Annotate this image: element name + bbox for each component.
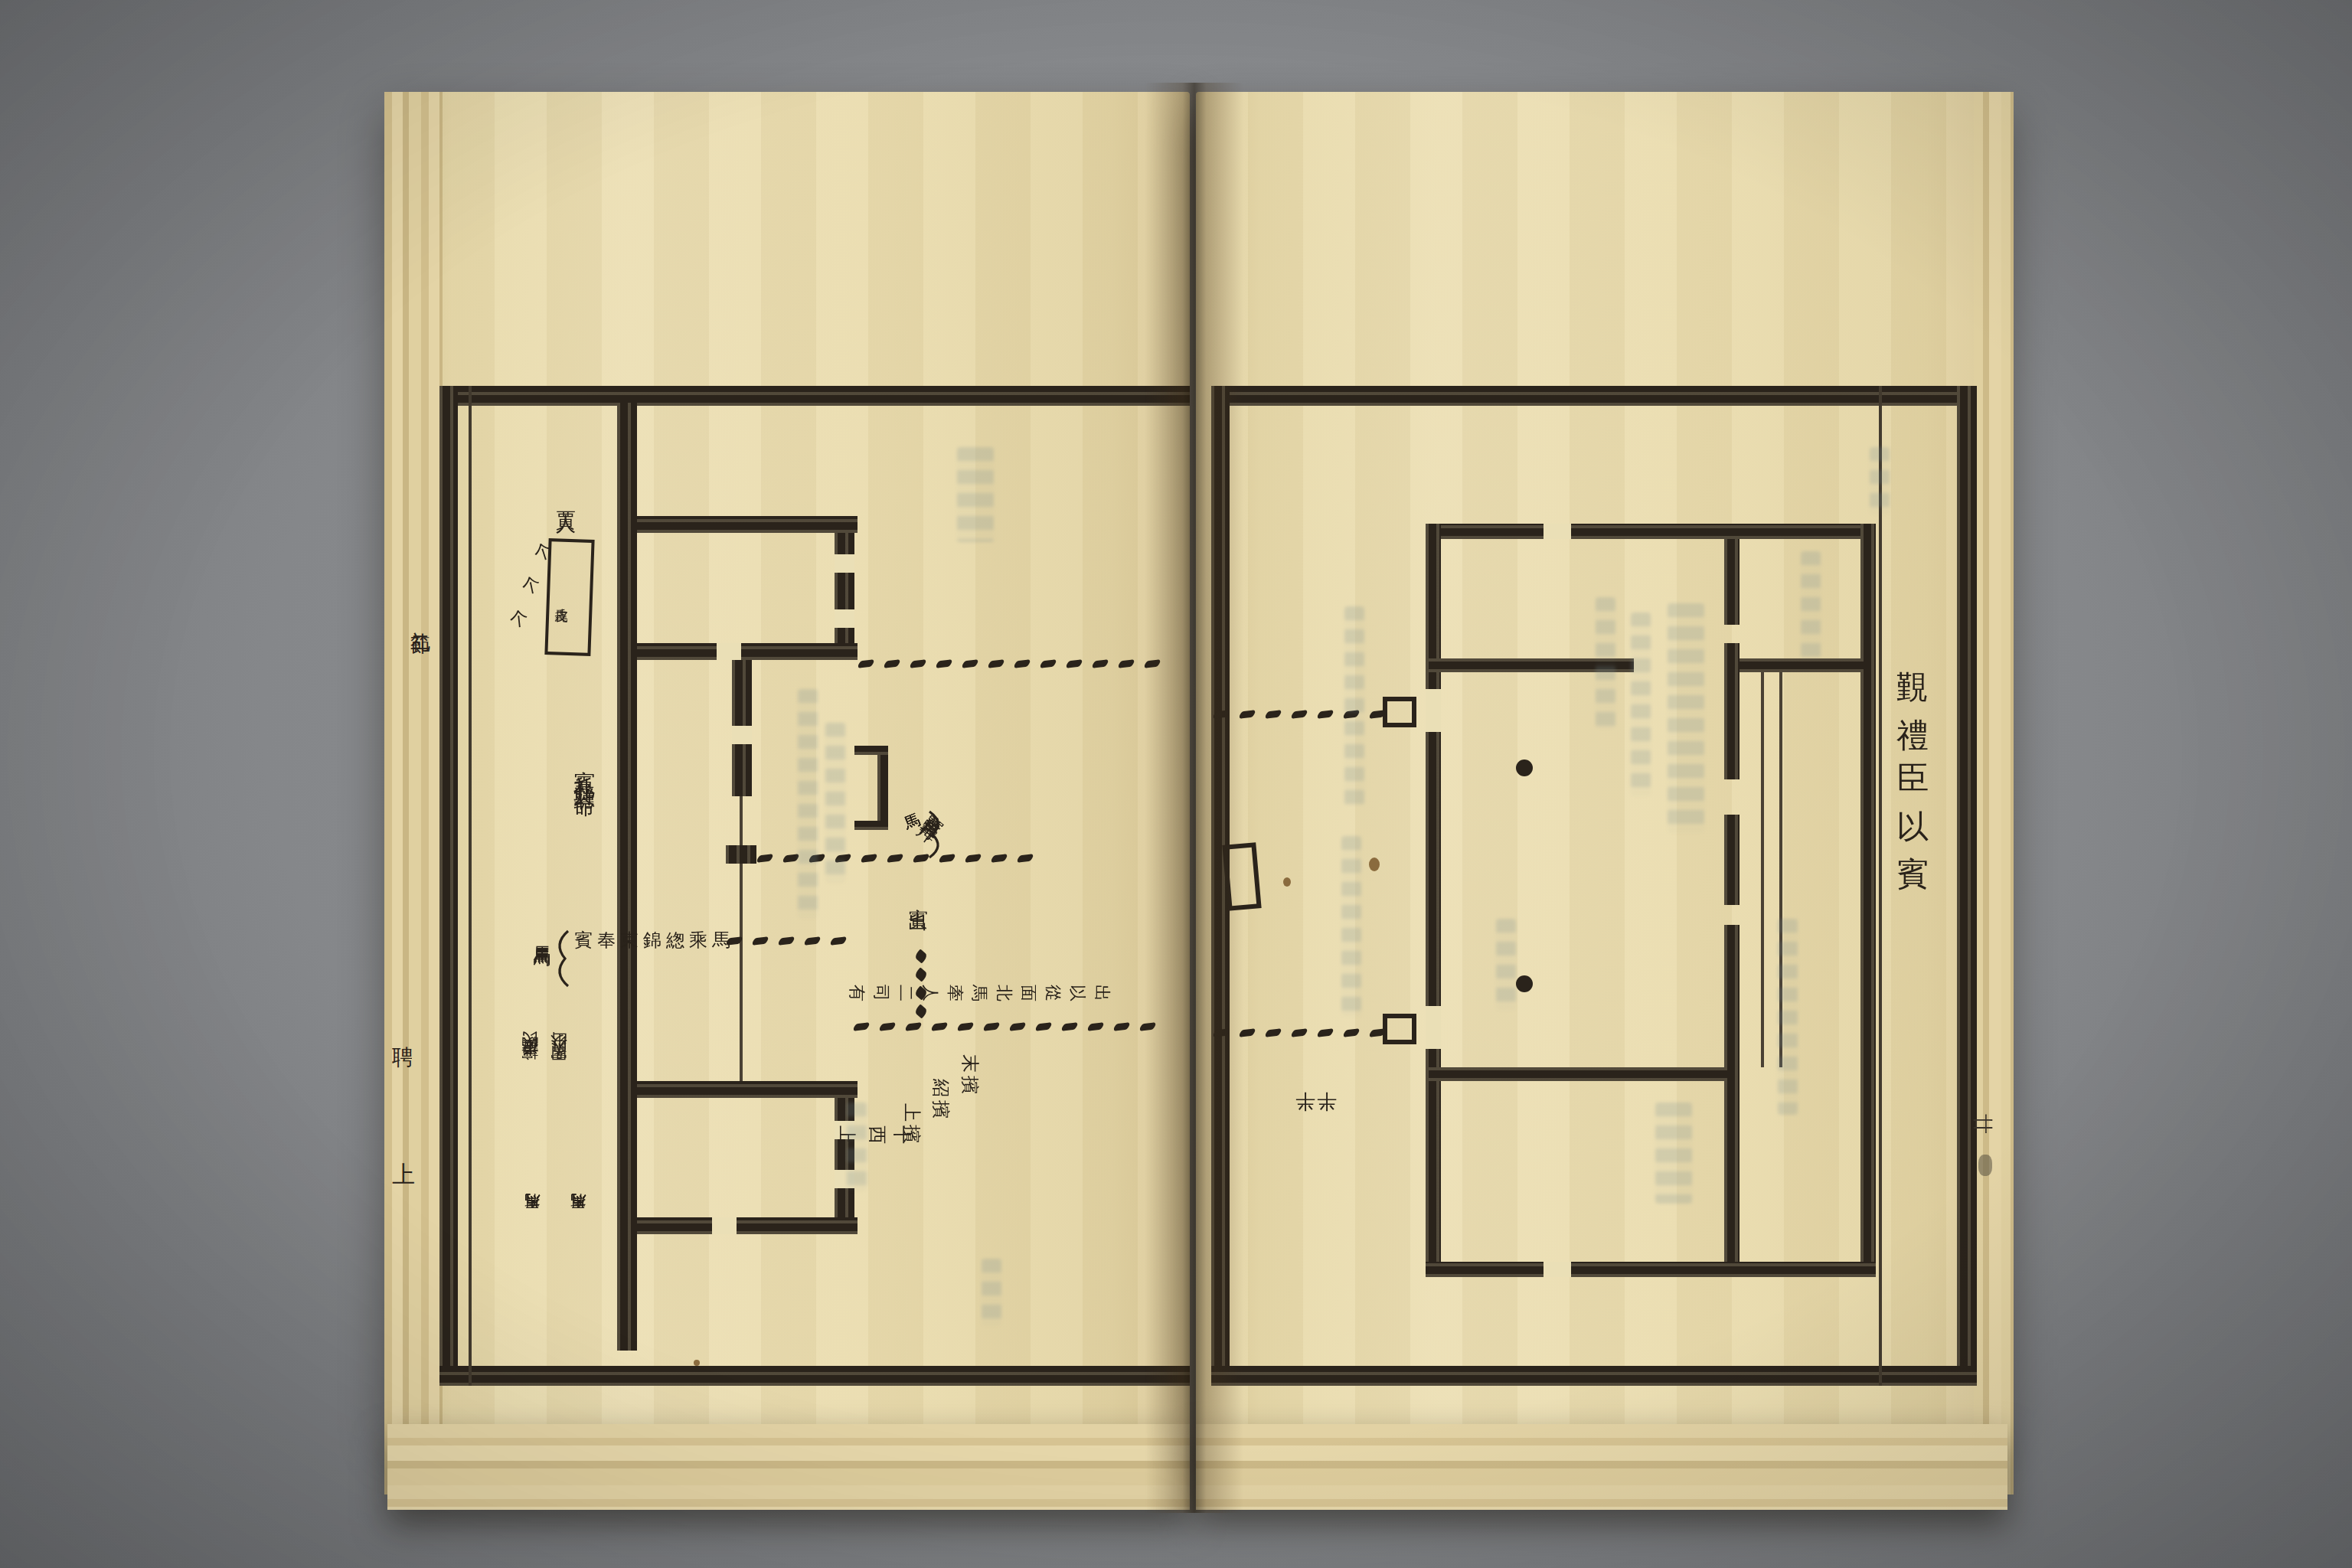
dotted-trail-offering <box>727 937 845 945</box>
plan-inner-wall-vertical <box>1724 539 1739 625</box>
door-slit <box>835 1170 854 1188</box>
ghost-bleed-text <box>1668 603 1704 833</box>
ghost-bleed-text <box>1801 551 1821 658</box>
foxing-speck <box>694 1360 700 1366</box>
plan-bottom-room-top-wall <box>637 1081 857 1098</box>
door-slit <box>835 1121 854 1139</box>
ghost-bleed-text <box>957 447 994 542</box>
ghost-bleed-text <box>1655 1102 1692 1204</box>
door-slit <box>1543 1262 1571 1277</box>
flipped-annotation-block: 賓四人以出 擯者謁侯氏 <box>522 1060 568 1075</box>
dotted-trail-upper <box>1214 710 1384 718</box>
right-page-bottom-edges <box>1196 1424 2007 1510</box>
plan-bottom-room-bottom-wall <box>637 1217 857 1234</box>
right-page: 覲禮臣以賓 半半 廿 <box>1196 92 2007 1427</box>
gate-opening <box>1426 1006 1441 1049</box>
plate-margin-rule <box>469 386 472 1386</box>
plan-lower-wall-horizontal <box>1429 1067 1727 1081</box>
plan-outer-wall-left <box>1426 524 1441 1277</box>
under-leaf-partial-char-1: 聘 <box>392 1044 412 1072</box>
leaf-number: 廿 <box>1968 1114 1996 1137</box>
corridor-line <box>1779 672 1782 1067</box>
plan-outer-wall-right <box>1860 524 1876 1277</box>
gate-opening <box>1426 689 1441 732</box>
left-page: 礼節二 聘 上 賈人 个 个 个 <box>387 92 1190 1427</box>
plate-frame-bottom <box>1211 1366 1977 1386</box>
dotted-trail-middle <box>758 854 1032 862</box>
rotated-pair-mark: 半半 <box>1294 1087 1337 1115</box>
label-west-upper: 十西上 <box>862 1133 936 1136</box>
gate-marker-square <box>1383 1014 1416 1044</box>
door-slit <box>712 1217 737 1234</box>
plan-inner-wall-vertical <box>1724 643 1739 779</box>
plate-frame-left <box>439 386 458 1386</box>
flipped-column-b: 賓四人以出 <box>551 1060 568 1075</box>
label-merchant: 賈人 <box>556 495 576 501</box>
label-usher-mid: 紹擯 <box>927 1079 953 1122</box>
jie-mark: 个 <box>508 606 532 634</box>
plan-top-room-bottom-wall <box>637 643 857 660</box>
plate-frame-right <box>1957 386 1977 1386</box>
plate-frame-top <box>1211 386 1977 406</box>
scanned-book-photo: 礼節二 聘 上 賈人 个 个 个 <box>0 0 2352 1568</box>
ghost-bleed-text <box>1344 606 1364 805</box>
ghost-bleed-text <box>1496 919 1516 1011</box>
position-dot-upper <box>1516 759 1533 776</box>
label-box-text: 毳皮 <box>554 596 568 597</box>
stele-bracket-top <box>854 746 888 755</box>
label-guest-exit: 賓出 <box>908 891 928 900</box>
label-box-outline: 毳皮 <box>544 538 594 656</box>
ghost-bleed-text <box>1631 612 1651 796</box>
plate-title: 覲禮臣以賓 <box>1896 646 1928 876</box>
door-slit <box>835 609 854 628</box>
plan-top-room-top-wall <box>637 516 857 533</box>
plan-inner-wall-vertical <box>1724 925 1739 1262</box>
door-slit <box>717 643 741 660</box>
under-leaf-edge-text: 礼節二 <box>397 616 430 815</box>
dotted-trail-upper <box>859 660 1159 668</box>
left-page-bottom-edges <box>387 1424 1190 1510</box>
label-offering: 賓奉束錦緫乘馬 <box>574 928 735 954</box>
corridor-line <box>1761 672 1764 1067</box>
plan-outer-wall-top <box>1426 524 1865 539</box>
plate-frame-bottom <box>439 1366 1190 1386</box>
plate-frame-top <box>439 386 1190 406</box>
dotted-trail-lower <box>1214 1029 1384 1037</box>
foxing-speck <box>1283 877 1291 887</box>
plan-inner-wall-right-horizontal <box>1739 658 1864 672</box>
label-guest-declines: 賓礼辤聽命 <box>574 753 596 784</box>
right-page-stacked-edges <box>1974 92 2014 1494</box>
plan-inner-wall-vertical <box>1724 815 1739 905</box>
label-officials: 有司二人牽馬北面從以出 <box>847 983 1112 1006</box>
plan-outer-wall-bottom <box>1426 1262 1876 1277</box>
plan-outer-wall-vertical <box>617 403 637 1351</box>
dotted-trail-lower <box>854 1023 1155 1031</box>
position-dot-lower <box>1516 975 1533 992</box>
ink-smudge <box>1978 1155 1992 1176</box>
under-leaf-partial-char-2: 上 <box>392 1161 415 1190</box>
foxing-speck <box>1369 857 1380 871</box>
label-usher-bottom: 上擯 <box>898 1103 924 1146</box>
plan-inner-wall-left-horizontal <box>1429 658 1634 672</box>
jie-mark: 个 <box>520 570 546 600</box>
door-slit <box>1543 524 1571 539</box>
ghost-bleed-text <box>982 1259 1001 1326</box>
ghost-bleed-text <box>798 689 818 919</box>
label-usher-top: 末擯 <box>956 1054 982 1097</box>
door-slit <box>732 726 752 744</box>
gate-marker-square <box>1383 697 1416 727</box>
door-slit <box>835 554 854 573</box>
small-rect-marker <box>1222 842 1261 911</box>
brace-mark <box>553 931 571 986</box>
plan-bottom-room-right-wall <box>835 1098 854 1217</box>
plan-hall-gate-block <box>726 845 756 864</box>
label-horses-a: 馬馬馬馬 <box>510 931 550 1014</box>
title-column-rule <box>1879 386 1882 1386</box>
ghost-bleed-text <box>1341 836 1361 1017</box>
flipped-column-a: 擯者謁侯氏 <box>522 1060 539 1075</box>
